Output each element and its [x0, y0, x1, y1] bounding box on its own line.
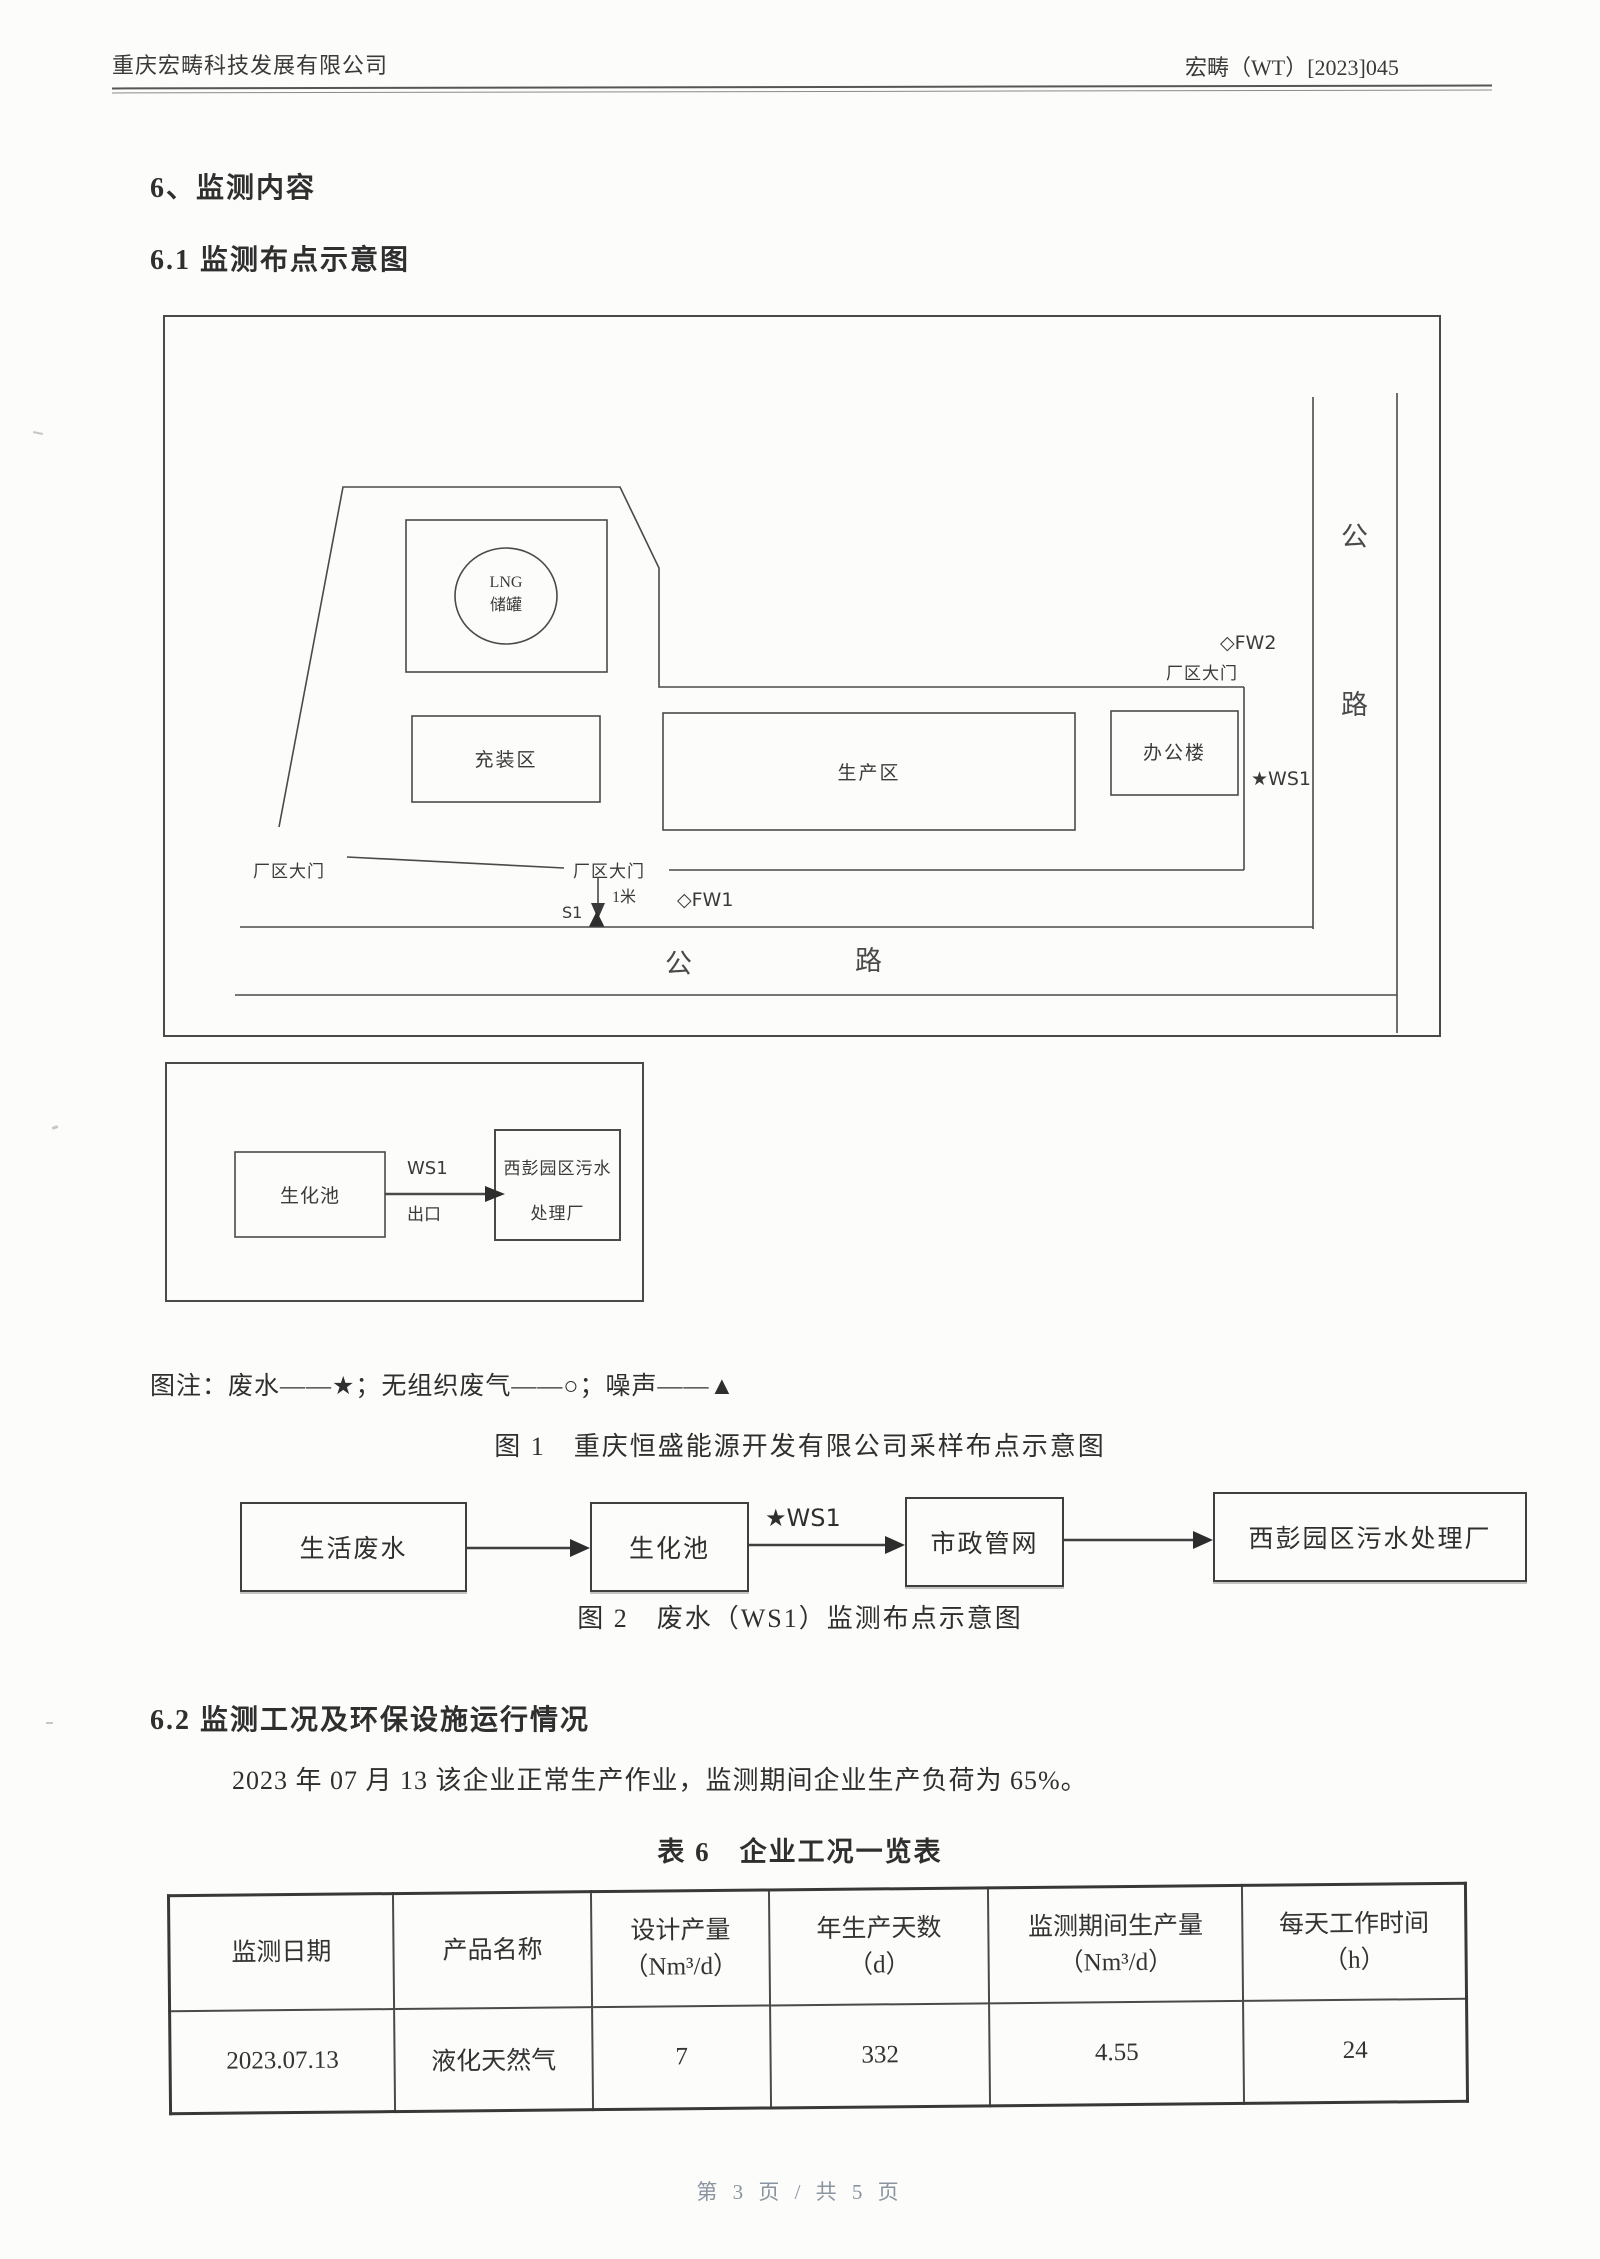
table6: 监测日期 产品名称 设计产量（Nm³/d） 年生产天数（d） 监测期间生产量（N…: [167, 1882, 1469, 2115]
table6-header-date: 监测日期: [168, 1894, 393, 2012]
table6-caption: 表 6 企业工况一览表: [0, 1830, 1600, 1869]
gate-label-middle: 厂区大门: [573, 857, 645, 882]
table6-header-work-hours: 每天工作时间（h）: [1242, 1883, 1466, 2001]
lng-tank-label-line1: LNG: [490, 574, 523, 591]
figure1-site-plan: LNG储罐 充装区 生产区 办公楼 ◇FW2 厂区大门 ★WS1 厂区大门 厂区…: [163, 315, 1441, 1037]
flow-box-municipal-pipe-network: 市政管网: [905, 1497, 1064, 1587]
figure1-caption: 图 1 重庆恒盛能源开发有限公司采样布点示意图: [0, 1426, 1600, 1463]
production-area-label: 生产区: [663, 758, 1075, 785]
heading-section-6-1: 6.1 监测布点示意图: [150, 238, 410, 278]
right-road-char-1: 公: [1341, 515, 1368, 554]
lng-tank-label-line2: 储罐: [490, 597, 522, 614]
table6-header-row: 监测日期 产品名称 设计产量（Nm³/d） 年生产天数（d） 监测期间生产量（N…: [168, 1883, 1466, 2011]
bottom-road-char-1: 公: [665, 942, 692, 981]
outlet-arrow-label: 出口: [407, 1200, 441, 1225]
scan-artifact: [46, 1722, 53, 1724]
s1-noise-point-label: S1: [562, 903, 582, 922]
figure1-legend: 图注：废水——★；无组织废气——○；噪声——▲: [150, 1366, 735, 1402]
heading-section-6-2: 6.2 监测工况及环保设施运行情况: [150, 1698, 590, 1738]
scanned-report-page: 重庆宏畴科技发展有限公司 宏畴（WT）[2023]045 6、监测内容 6.1 …: [0, 0, 1600, 2259]
ws1-sampling-point: ★WS1: [1251, 768, 1311, 790]
distance-label: 1米: [612, 883, 636, 907]
figure2-ws1-marker: ★WS1: [765, 1504, 841, 1532]
biochemical-pool-label: 生化池: [235, 1181, 385, 1208]
treatment-plant-label-line1: 西彭园区污水: [495, 1154, 620, 1179]
cell-work-hours: 24: [1243, 1999, 1467, 2104]
header-doc-number: 宏畴（WT）[2023]045: [1185, 50, 1399, 82]
flow-box-biochemical-pool: 生化池: [590, 1502, 749, 1592]
cell-monitoring-output: 4.55: [989, 2001, 1244, 2106]
site-plan-linework: [165, 317, 1439, 1035]
table6-header-product: 产品名称: [393, 1892, 593, 2009]
figure2-caption: 图 2 废水（WS1）监测布点示意图: [0, 1598, 1600, 1635]
scan-artifact: [33, 431, 43, 435]
fw1-sampling-point: ◇FW1: [677, 889, 733, 911]
fw2-sampling-point: ◇FW2: [1220, 632, 1276, 654]
table6-header-monitoring-output: 监测期间生产量（Nm³/d）: [988, 1885, 1243, 2003]
figure1-ws1-detail: 生化池 WS1 出口 西彭园区污水 处理厂: [165, 1062, 644, 1302]
section-6-2-paragraph: 2023 年 07 月 13 该企业正常生产作业，监测期间企业生产负荷为 65%…: [232, 1760, 1462, 1797]
right-road-char-2: 路: [1341, 683, 1368, 722]
gate-label-left: 厂区大门: [253, 857, 325, 882]
filling-area-label: 充装区: [412, 745, 600, 772]
header-company-name: 重庆宏畴科技发展有限公司: [112, 48, 388, 80]
page-number-indicator: 第 3 页 / 共 5 页: [0, 2176, 1600, 2206]
cell-monitoring-date: 2023.07.13: [170, 2009, 395, 2114]
heading-section-6: 6、监测内容: [150, 166, 316, 206]
cell-product-name: 液化天然气: [394, 2007, 593, 2111]
cell-production-days: 332: [770, 2003, 990, 2108]
lng-tank-label: LNG储罐: [456, 571, 556, 617]
s1-noise-point-symbol: ▲: [589, 905, 604, 929]
table6-data-row: 2023.07.13 液化天然气 7 332 4.55 24: [170, 1999, 1468, 2114]
table6-header-production-days: 年生产天数（d）: [769, 1888, 989, 2006]
scan-artifact: [52, 1125, 59, 1130]
office-building-label: 办公楼: [1111, 738, 1238, 765]
gate-label-right: 厂区大门: [1166, 659, 1238, 684]
table6-header-design-output: 设计产量（Nm³/d）: [591, 1890, 770, 2007]
bottom-road-char-2: 路: [855, 939, 882, 978]
cell-design-output: 7: [592, 2005, 771, 2109]
ws1-arrow-label: WS1: [407, 1158, 448, 1179]
flow-box-treatment-plant: 西彭园区污水处理厂: [1213, 1492, 1527, 1582]
flow-box-domestic-wastewater: 生活废水: [240, 1502, 467, 1592]
treatment-plant-label-line2: 处理厂: [495, 1199, 620, 1224]
header-rule: [112, 85, 1492, 94]
